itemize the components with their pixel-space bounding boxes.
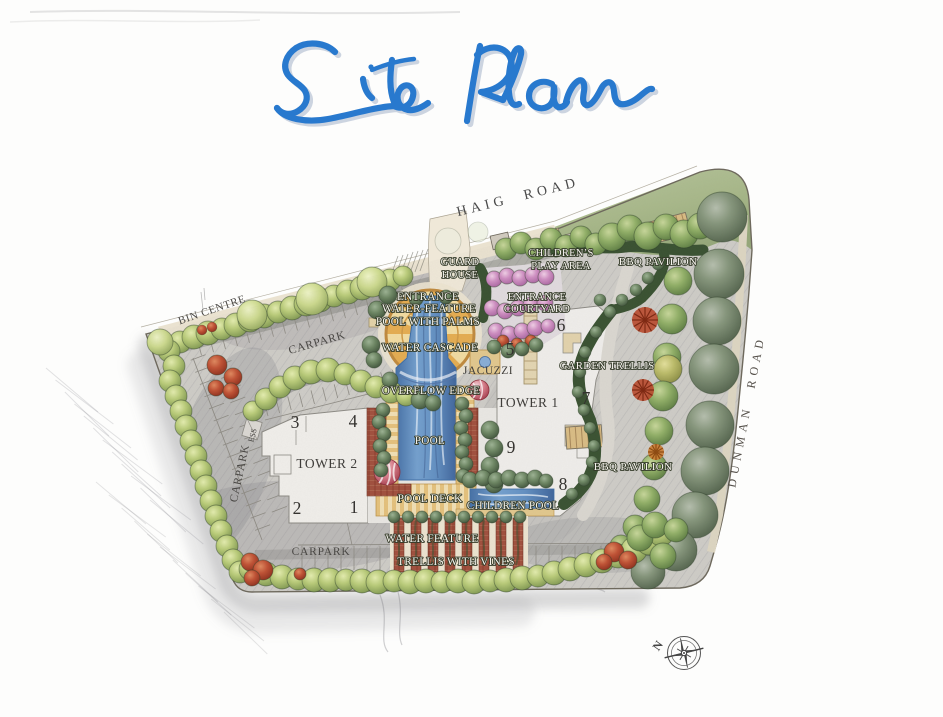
svg-text:1: 1 (350, 497, 359, 517)
svg-text:7: 7 (582, 388, 591, 408)
svg-text:5: 5 (506, 339, 515, 359)
svg-text:6: 6 (557, 315, 566, 335)
svg-text:8: 8 (559, 474, 568, 494)
svg-text:4: 4 (349, 411, 358, 431)
svg-text:BBQ PAVILION: BBQ PAVILION (619, 256, 697, 268)
svg-text:WATER FEATURE: WATER FEATURE (385, 533, 478, 545)
svg-text:OVERFLOW EDGE: OVERFLOW EDGE (382, 385, 480, 397)
svg-text:9: 9 (507, 437, 516, 457)
svg-text:TOWER 1: TOWER 1 (497, 395, 558, 410)
svg-text:WATER CASCADE: WATER CASCADE (382, 342, 478, 354)
svg-text:HOUSE: HOUSE (442, 270, 479, 281)
svg-text:CHILDREN’S: CHILDREN’S (528, 248, 593, 259)
svg-text:3: 3 (291, 412, 300, 432)
svg-text:TRELLIS WITH VINES: TRELLIS WITH VINES (397, 556, 514, 568)
svg-text:GUARD: GUARD (441, 257, 480, 268)
svg-text:PLAY AREA: PLAY AREA (531, 261, 591, 272)
svg-text:POOL WITH PALMS: POOL WITH PALMS (376, 316, 480, 328)
svg-text:GARDEN TRELLIS: GARDEN TRELLIS (560, 360, 655, 372)
svg-text:ENTRANCE: ENTRANCE (508, 292, 566, 303)
svg-text:WATER-FEATURE: WATER-FEATURE (382, 303, 476, 315)
svg-text:COURTYARD: COURTYARD (504, 304, 570, 315)
svg-text:ENTRANCE: ENTRANCE (397, 291, 459, 303)
svg-text:BBQ PAVILION: BBQ PAVILION (594, 461, 672, 473)
svg-text:TOWER 2: TOWER 2 (296, 456, 357, 471)
svg-text:JACUZZI: JACUZZI (463, 365, 513, 377)
svg-text:POOL DECK: POOL DECK (398, 493, 463, 505)
svg-text:CARPARK: CARPARK (292, 546, 351, 558)
svg-text:2: 2 (293, 498, 302, 518)
svg-text:CHILDREN POOL: CHILDREN POOL (467, 500, 559, 512)
svg-text:POOL: POOL (415, 435, 445, 447)
